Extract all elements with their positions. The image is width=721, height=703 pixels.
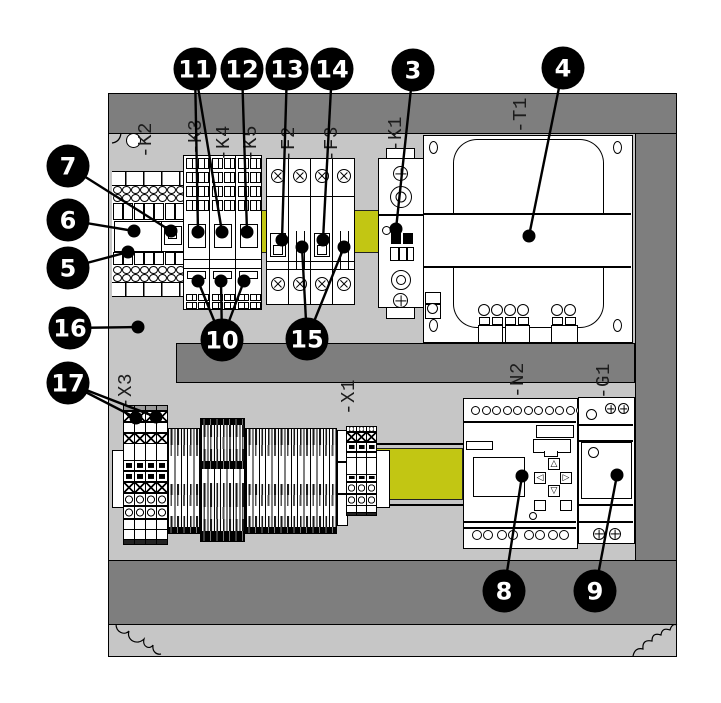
terminal-strip-a-band (168, 516, 199, 527)
contactor-terminal-pair (186, 158, 197, 169)
n2-divider-top (464, 421, 576, 423)
contactor-terminal-pair (224, 172, 235, 183)
k2-comb-top (112, 171, 186, 186)
cabinet-assembly-diagram: △ ◁ ▷ ▽ 34567891011121314151617-K2-K3-K4… (0, 0, 721, 703)
t1-secondary-block (551, 325, 578, 343)
contactor-terminal-pair (212, 302, 223, 309)
terminal-strip-b-band (246, 527, 336, 533)
t1-secondary-terminal (564, 304, 576, 316)
t1-secondary-terminal (551, 304, 563, 316)
k2-terminal-ring (113, 274, 122, 282)
breaker-divider (267, 196, 288, 197)
k2-body-divider (161, 222, 162, 251)
ssr-divider (379, 214, 423, 216)
n2-top-terminal (555, 406, 564, 415)
terminal-strip-b-band (246, 434, 336, 445)
terminal-strip-b-band (246, 456, 336, 467)
contactor-divider (184, 259, 209, 260)
k2-terminal-ring (167, 274, 176, 282)
contactor-terminal-pair (238, 186, 249, 197)
x3-terminal-seg (156, 539, 168, 545)
contactor-k5 (235, 155, 262, 310)
contactor-terminal-pair (224, 302, 235, 309)
k2-terminal-ring (149, 266, 158, 274)
breaker-divider (289, 196, 310, 197)
n2-keypad-notch (544, 451, 558, 457)
breaker-divider (333, 196, 354, 197)
ssr-knob-top-icon (390, 186, 412, 208)
contactor-terminal-pair (250, 294, 261, 301)
contactor-terminal-pair (198, 186, 209, 197)
contactor-terminal-pair (186, 302, 197, 309)
t1-secondary-lug (552, 317, 563, 325)
g1-screw-top-2 (618, 403, 629, 414)
g1-screw-top-1 (605, 403, 616, 414)
n2-top-terminal (566, 406, 575, 415)
k2-terminal-ring (158, 194, 167, 202)
ssr-k1 (378, 148, 425, 319)
breaker-pole-2 (288, 158, 311, 305)
terminal-strip-a-band (168, 527, 199, 533)
n2-top-terminal (471, 406, 480, 415)
k2-terminal-ring (158, 274, 167, 282)
k2-terminal-ring (158, 186, 167, 194)
k2-terminal-cell (123, 252, 133, 265)
k2-flag-icon (168, 232, 177, 239)
callout-12: 12 (221, 48, 264, 91)
terminal-strip-tall-band (201, 519, 244, 531)
contactor-terminal-pair (198, 158, 209, 169)
breaker-divider (333, 269, 354, 270)
t1-corner-hole (429, 141, 438, 154)
k2-flag-box (164, 226, 182, 245)
k2-terminal-ring (131, 194, 140, 202)
n2-key-esc (534, 500, 546, 511)
g1-led-panel (588, 447, 599, 458)
breaker-link-line (348, 231, 349, 269)
terminal-strip-b-band (246, 506, 336, 516)
terminal-strip-a-band (168, 456, 199, 467)
breaker-divider (267, 269, 288, 270)
k2-terminal-ring (167, 194, 176, 202)
n2-divider-bottom2 (464, 527, 576, 529)
breaker-divider (289, 261, 310, 262)
n2-bottom-terminals (472, 530, 572, 542)
contactor-terminal-pair (186, 186, 197, 197)
breaker-screw-bottom-icon (293, 277, 307, 291)
t1-corner-hole (613, 141, 622, 154)
k2-terminal-cell (113, 203, 123, 220)
breaker-screw-top-icon (337, 169, 351, 183)
k2-relay-body (114, 221, 184, 252)
t1-terminal-group-primary (478, 304, 534, 344)
breaker-pole-3 (310, 158, 333, 305)
k2-terminal-ring (167, 186, 176, 194)
breaker-divider (267, 261, 288, 262)
n2-bottom-terminal (483, 530, 493, 540)
t1-secondary-lug (565, 317, 576, 325)
device-label-f2: -F2 (278, 126, 300, 162)
breaker-screw-top-icon (315, 169, 329, 183)
device-label-t1: -T1 (510, 97, 532, 133)
psu-g1 (578, 397, 635, 544)
ssr-screw-bottom-icon (393, 293, 408, 308)
n2-key-right: ▷ (560, 472, 572, 484)
breaker-pole-1 (266, 158, 289, 305)
k2-comb-bottom (112, 282, 186, 297)
k2-terminal-ring (140, 186, 149, 194)
n2-bottom-terminal (472, 530, 482, 540)
k2-terminal-cell (123, 203, 133, 220)
n2-key-up: △ (548, 458, 560, 470)
x1-terminal-seg (366, 458, 377, 474)
contactor-terminal-pair (238, 172, 249, 183)
t1-primary-lug (492, 317, 503, 325)
terminal-strip-b (245, 428, 337, 534)
n2-top-terminal (545, 406, 554, 415)
ssr-terminal-box-line (406, 248, 408, 260)
n2-display (473, 457, 525, 497)
contactor-terminal-pair (186, 294, 197, 301)
terminal-strip-a-band (168, 467, 199, 484)
contactor-aux-slot (213, 271, 232, 279)
t1-core-top (453, 139, 604, 213)
terminal-strip-a-band (168, 495, 199, 506)
transformer-t1 (423, 135, 633, 343)
k2-terminal-cell (154, 203, 164, 220)
terminal-strip-tall-band (201, 507, 244, 519)
k2-terminal-cell (144, 252, 154, 265)
terminal-strip-a-band (168, 434, 199, 445)
terminal-strip-tall-band (201, 495, 244, 507)
g1-screw-bottom-2 (609, 528, 621, 540)
contactor-actuator-window (188, 224, 206, 248)
contactor-divider (210, 259, 235, 260)
contactor-terminal-pair (186, 200, 197, 211)
n2-top-terminal (482, 406, 491, 415)
callout-17: 17 (47, 362, 90, 405)
x1-terminal-seg (366, 494, 377, 506)
k2-terminal-ring (113, 186, 122, 194)
x1-terminal-seg (366, 482, 377, 494)
ssr-knob-bottom-icon (391, 270, 411, 290)
x1-terminal-seg (366, 432, 377, 442)
k2-terminal-cell (144, 203, 154, 220)
enclosure-right-band (635, 133, 677, 625)
device-label-k2: -K2 (135, 122, 157, 158)
callout-14: 14 (311, 48, 354, 91)
contactor-actuator-window (240, 224, 258, 248)
t1-side-hole (427, 303, 438, 314)
contactor-terminal-pair (250, 186, 261, 197)
contactor-terminal-pair (212, 186, 223, 197)
n2-screw-hole (529, 512, 537, 520)
device-label-n2: -N2 (507, 362, 529, 398)
contactor-divider (236, 268, 261, 269)
n2-top-terminals (471, 406, 572, 417)
x3-terminal-seg (156, 411, 168, 422)
k2-terminal-ring (122, 194, 131, 202)
relay-block-k2 (112, 171, 186, 297)
contactor-terminal-pair (198, 294, 209, 301)
callout-7: 7 (47, 145, 90, 188)
terminal-strip-b-band (246, 495, 336, 506)
contactor-terminal-pair (238, 200, 249, 211)
contactor-terminal-pair (224, 200, 235, 211)
k2-terminal-cell (134, 203, 144, 220)
wire-duct (176, 343, 635, 383)
ssr-bottom-tab (386, 307, 415, 319)
t1-primary-lug (505, 317, 516, 325)
breaker-screw-bottom-icon (315, 277, 329, 291)
contactor-terminal-pair (198, 302, 209, 309)
device-label-f3: -F3 (321, 126, 343, 162)
n2-bottom-terminal (548, 530, 558, 540)
breaker-screw-bottom-icon (337, 277, 351, 291)
terminal-strip-b-band (246, 445, 336, 456)
contactor-divider (184, 268, 209, 269)
k2-terminal-ring (140, 194, 149, 202)
contactor-aux-slot (187, 271, 206, 279)
contactor-terminal-pair (224, 186, 235, 197)
k2-terminal-cell (165, 203, 175, 220)
callout-6: 6 (47, 199, 90, 242)
callout-3: 3 (392, 49, 435, 92)
callout-11: 11 (174, 48, 217, 91)
breaker-divider (311, 261, 332, 262)
contactor-divider (210, 268, 235, 269)
terminal-strip-tall-band (201, 531, 244, 541)
contactor-terminal-pair (186, 172, 197, 183)
plc-n2: △ ◁ ▷ ▽ (463, 398, 578, 549)
n2-key-ok (560, 500, 572, 511)
n2-bottom-terminal (497, 530, 507, 540)
terminal-strip-b-band (246, 484, 336, 495)
contactor-terminal-pair (238, 302, 249, 309)
ssr-terminal-box (390, 247, 414, 261)
contactor-terminal-pair (198, 172, 209, 183)
breaker-rocker-inner (273, 245, 283, 255)
breaker-divider (311, 196, 332, 197)
terminal-strip-tall-band (201, 483, 244, 495)
terminal-strip-a-band (168, 445, 199, 456)
enclosure-bottom-strip (108, 624, 677, 657)
k2-terminal-ring (167, 266, 176, 274)
contactor-divider (236, 259, 261, 260)
callout-5: 5 (47, 247, 90, 290)
k2-terminal-cell (134, 252, 144, 265)
g1-divider-4 (579, 521, 633, 523)
k2-terminal-ring (158, 266, 167, 274)
n2-bottom-terminal (535, 530, 545, 540)
k2-terminal-ring (131, 266, 140, 274)
n2-divider-bottom1 (464, 521, 576, 523)
breaker-screw-top-icon (293, 169, 307, 183)
t1-primary-terminal (491, 304, 503, 316)
k2-terminal-ring (131, 274, 140, 282)
g1-led-top (586, 409, 597, 420)
ssr-screw-top-icon (393, 166, 408, 181)
breaker-link-line (340, 231, 341, 269)
device-label-k1: -K1 (385, 116, 407, 152)
device-label-x3: -X3 (115, 373, 137, 409)
t1-primary-lug (479, 317, 490, 325)
callout-15: 15 (286, 318, 329, 361)
n2-top-terminal (534, 406, 543, 415)
n2-bottom-terminal (524, 530, 534, 540)
t1-corner-hole (613, 319, 622, 332)
t1-primary-terminal (517, 304, 529, 316)
terminal-strip-tall-band (201, 437, 244, 449)
k2-terminal-cell (154, 252, 164, 265)
t1-primary-terminal (478, 304, 490, 316)
contactor-aux-slot (239, 271, 258, 279)
breaker-rocker-inner (317, 245, 327, 255)
callout-4: 4 (542, 47, 585, 90)
terminal-strip-a (167, 428, 200, 534)
g1-divider-1 (579, 424, 633, 426)
device-label-x1: -X1 (338, 379, 360, 415)
terminal-strip-tall-band (201, 469, 244, 483)
callout-16: 16 (49, 307, 92, 350)
k2-terminal-ring (113, 266, 122, 274)
k2-terminal-ring (140, 266, 149, 274)
n2-top-terminal (492, 406, 501, 415)
callout-13: 13 (266, 48, 309, 91)
k2-terminal-ring (131, 186, 140, 194)
contactor-k4 (209, 155, 236, 310)
k2-terminal-ring (113, 194, 122, 202)
t1-terminal-group-secondary (551, 304, 581, 344)
contactor-actuator-window (214, 224, 232, 248)
contactor-k3 (183, 155, 210, 310)
contactor-terminal-pair (212, 172, 223, 183)
callout-9: 9 (574, 570, 617, 613)
k2-terminal-ring (122, 186, 131, 194)
breaker-link-line (296, 231, 297, 269)
contactor-terminal-pair (238, 294, 249, 301)
terminal-strip-b-band (246, 516, 336, 527)
breaker-pole-4 (332, 158, 355, 305)
terminal-strip-tall-band (201, 461, 244, 469)
terminal-strip-a-band (168, 484, 199, 495)
n2-top-terminal (513, 406, 522, 415)
breaker-screw-bottom-icon (271, 277, 285, 291)
g1-screw-bottom-1 (593, 528, 605, 540)
t1-primary-lug (518, 317, 529, 325)
ssr-terminal-dark-1 (391, 233, 401, 244)
terminal-strip-tall-band (201, 425, 244, 437)
t1-primary-terminal (504, 304, 516, 316)
n2-key-left: ◁ (534, 472, 546, 484)
breaker-divider (311, 269, 332, 270)
device-label-k4: -K4 (213, 125, 235, 161)
device-label-k3: -K3 (185, 119, 207, 155)
contactor-terminal-pair (224, 294, 235, 301)
t1-corner-hole (429, 319, 438, 332)
k2-terminal-ring (149, 186, 158, 194)
n2-key-down: ▽ (548, 485, 560, 497)
breaker-link-line (304, 231, 305, 269)
ssr-led-icon (382, 226, 391, 235)
terminal-strip-a-band (168, 506, 199, 516)
din-rail-lower-edge-top (371, 443, 463, 445)
k2-terminal-ring (149, 274, 158, 282)
callout-8: 8 (483, 570, 526, 613)
callout-10: 10 (201, 319, 244, 362)
k2-terminal-ring (149, 194, 158, 202)
ssr-terminal-dark-2 (403, 233, 413, 244)
k2-terminal-cell (113, 252, 123, 265)
contactor-terminal-pair (250, 172, 261, 183)
device-label-g1: -G1 (593, 363, 615, 399)
terminal-strip-tall (200, 418, 245, 542)
t1-primary-block (505, 325, 530, 343)
n2-top-terminal (524, 406, 533, 415)
contactor-terminal-pair (250, 200, 261, 211)
device-label-k5: -K5 (240, 125, 262, 161)
n2-label-window (536, 425, 574, 438)
n2-bottom-terminal (508, 530, 518, 540)
terminal-strip-tall-band (201, 449, 244, 461)
k2-terminal-ring (122, 274, 131, 282)
n2-side-slot (466, 441, 493, 450)
x1-terminal-seg (366, 512, 377, 516)
contactor-terminal-pair (212, 294, 223, 301)
k2-terminal-cell (165, 252, 175, 265)
terminal-strip-b-band (246, 467, 336, 484)
n2-bottom-terminal (559, 530, 569, 540)
breaker-divider (333, 261, 354, 262)
k2-terminal-ring (122, 266, 131, 274)
breaker-screw-top-icon (271, 169, 285, 183)
contactor-terminal-pair (212, 200, 223, 211)
contactor-terminal-pair (250, 302, 261, 309)
t1-band-top-line (424, 213, 631, 215)
ssr-terminal-box-line (398, 248, 400, 260)
t1-primary-block (478, 325, 503, 343)
x1-terminal-seg (366, 474, 377, 482)
g1-divider-3 (579, 504, 633, 506)
x1-terminal-seg (366, 442, 377, 452)
contactor-terminal-pair (198, 200, 209, 211)
breaker-divider (289, 269, 310, 270)
k2-terminal-ring (140, 274, 149, 282)
n2-top-terminal (503, 406, 512, 415)
